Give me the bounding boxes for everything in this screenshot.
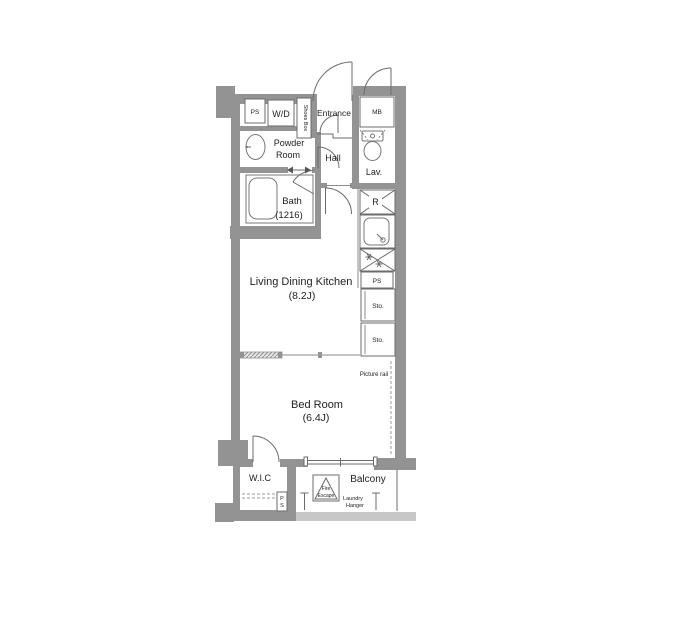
label-powder-1: Powder [274,138,305,148]
wall-wic-left [233,466,240,511]
label-ps-top: PS [251,109,260,116]
label-hall: Hall [325,153,341,163]
label-fire-2: Escape [318,493,335,499]
entrance-door-arc [313,62,352,101]
hanger-pipe-lines [242,494,277,498]
wall-bedroom-wic-left [240,459,253,467]
label-picture-rail: Picture rail [360,372,388,378]
ldk-bedroom-partition [240,352,360,358]
sliding-arrow-right [305,167,311,174]
label-storage2: Sto. [372,337,384,344]
label-bedroom: Bed Room [291,399,343,411]
label-ps-kitchen: PS [373,278,382,285]
wall-powder-top [240,126,299,131]
wall-left [231,104,240,442]
window-frame-right [374,457,378,466]
laundry-pole-right [372,493,380,510]
toilet-bowl [364,142,381,161]
wall-powder-bath-left [240,167,288,173]
label-balcony: Balcony [350,474,386,485]
wall-block-bottom-left [215,503,234,522]
label-powder-2: Room [276,150,300,160]
toilet-button [371,134,375,138]
genkan-step-line [317,134,352,138]
label-shoes-box: Shoes Box [302,105,308,132]
partition-hatch-band [240,352,282,358]
balcony-slab [296,512,416,521]
label-ps-wic-p: P [280,496,284,502]
kitchen-column [358,188,395,356]
label-bedroom-size: (6.4J) [303,412,330,424]
wall-bedroom-balcony-left [280,459,307,467]
label-fire-1: Fire [322,486,331,492]
label-meter-box: MB [372,109,382,116]
floorplan-page: { "palette": { "wall": "#939393", "balco… [0,0,679,620]
label-ldk-size: (8.2J) [289,290,316,302]
bedroom-wic-door-arc [253,436,279,462]
partition-end-left [240,352,244,358]
lavatory [360,130,385,161]
balcony-window [304,457,377,467]
floor-plan: PS W/D Shoes Box Entrance MB Powder Room… [0,0,679,620]
label-bath-size: (1216) [275,210,302,221]
window-frame-left [304,457,308,466]
wall-wic-balcony [287,466,296,512]
hall-ldk-door-arc [326,188,352,214]
label-laundry-2: Hanger [346,503,364,509]
label-refrigerator: R [372,197,379,207]
wall-hall-lav [352,95,359,188]
label-lavatory: Lav. [366,167,382,177]
wall-hall-ldk-right [350,183,359,188]
bathtub-icon [249,178,277,219]
wall-bottom [232,510,296,521]
washbasin-drain [246,146,248,148]
wall-bath-ldk [230,226,318,239]
label-ps-wic-s: S [280,503,284,509]
laundry-pole-left [301,493,309,510]
partition-node [318,352,322,358]
label-laundry-1: Laundry [343,496,363,502]
label-storage1: Sto. [372,303,384,310]
partition-end-right [278,352,282,358]
wall-bedroom-balcony-right [374,458,416,470]
label-entrance: Entrance [317,108,351,118]
label-washer-dryer: W/D [272,109,290,119]
wall-right [395,86,406,460]
label-ldk: Living Dining Kitchen [250,276,353,288]
label-bath: Bath [282,196,302,207]
label-wic: W.I.C [249,473,271,483]
